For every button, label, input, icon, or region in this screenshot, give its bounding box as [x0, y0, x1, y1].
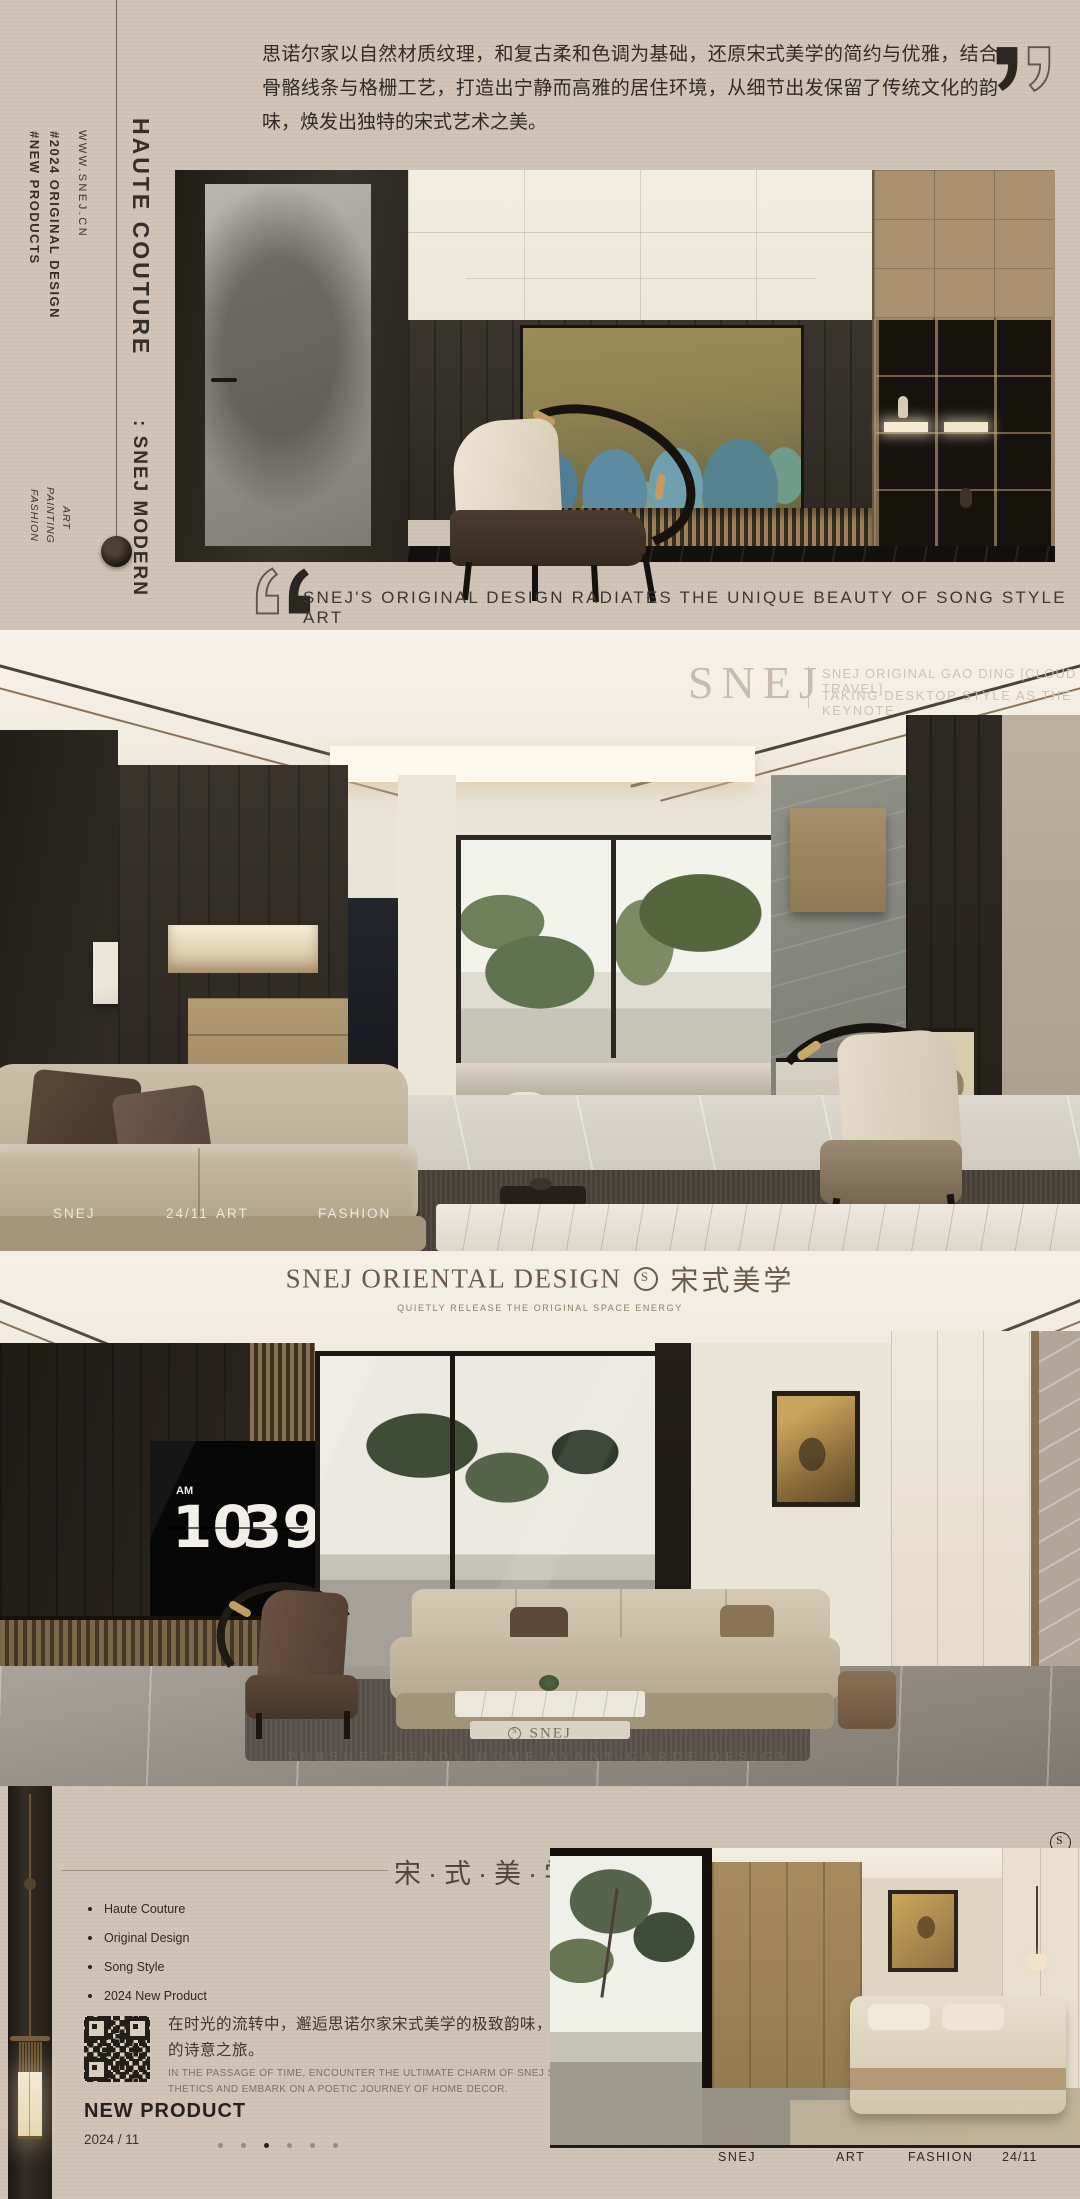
intro-paragraph: 思诺尔家以自然材质纹理，和复古柔和色调为基础，还原宋式美学的简约与优雅，结合骨骼…: [262, 38, 998, 140]
bed: [850, 1996, 1066, 2114]
feature-list: Haute Couture Original Design Song Style…: [88, 1894, 207, 2010]
shelf-light: [884, 422, 928, 432]
feature-item: Song Style: [88, 1952, 207, 1981]
left-rail-divider: [116, 0, 117, 546]
tall-cabinet: [891, 1331, 1039, 1713]
floor-brand: SNEJ: [530, 1725, 572, 1741]
qr-finder: [85, 2058, 108, 2081]
bedroom-art: [888, 1890, 958, 1972]
bottom-bar-issue: 24/11: [1002, 2150, 1037, 2164]
floor-brand-row: S SNEJ: [0, 1725, 1080, 1743]
accent-chair-seat: [246, 1675, 358, 1719]
rail-website: WWW.SNEJ.CN: [76, 130, 88, 238]
cabinet-seam: [408, 232, 872, 233]
pager-dots: [218, 2135, 356, 2153]
photo-footer-fashion: FASHION: [318, 1206, 391, 1221]
pager-dot: [287, 2143, 292, 2148]
framed-art: [772, 1391, 860, 1507]
shelf-vase: [898, 396, 908, 418]
title-rule: [62, 1870, 388, 1871]
garden-window: [456, 835, 781, 1073]
rail-headline: HAUTE COUTURE: [127, 118, 154, 356]
feature-item: Haute Couture: [88, 1894, 207, 1923]
pager-dot: [333, 2143, 338, 2148]
shelf-vase: [960, 488, 972, 508]
bottom-bar-brand: SNEJ: [718, 2150, 756, 2164]
bullet-icon: [88, 1907, 92, 1911]
frosted-door-glass: [205, 184, 371, 546]
body-cn-line2: 的诗意之旅。: [168, 2038, 264, 2060]
intro-quote: SNEJ'S ORIGINAL DESIGN RADIATES THE UNIQ…: [303, 588, 1080, 628]
bullet-icon: [88, 1965, 92, 1969]
bullet-icon: [88, 1994, 92, 1998]
rail-keyword-painting: PAINTING: [44, 487, 56, 544]
wood-wardrobe: [712, 1862, 862, 2102]
oriental-title-cn: 宋式美学: [670, 1265, 794, 1296]
table-plant: [539, 1675, 559, 1691]
bed-pillow: [868, 2004, 930, 2030]
flip-clock-seam: [168, 1527, 304, 1529]
frosted-door: [175, 170, 408, 562]
photo-footer-art: ART: [216, 1206, 249, 1221]
bedroom-photo: [550, 1848, 1080, 2148]
kitchen-lit-niche: [168, 925, 318, 973]
qr-code: [84, 2016, 150, 2082]
bottom-bar-art: ART: [836, 2150, 865, 2164]
ceiling-cove: [330, 746, 755, 782]
bottom-bar-fashion: FASHION: [908, 2150, 973, 2164]
oriental-subtitle: QUIETLY RELEASE THE ORIGINAL SPACE ENERG…: [0, 1303, 1080, 1313]
window-mullion: [611, 840, 616, 1058]
body-cn-line1: 在时光的流转中，邂逅思诺尔家宋式美学的极致韵味，开启家居: [168, 2012, 616, 2034]
tv-wall-slats-upper: [250, 1343, 315, 1443]
right-upper-cabinet: [790, 808, 886, 912]
photo-footer-brand: SNEJ: [53, 1206, 96, 1221]
new-product-label: NEW PRODUCT: [84, 2100, 246, 2123]
tray-bowl: [530, 1178, 552, 1190]
accent-chair-seat: [820, 1140, 962, 1204]
lamp-cap: [18, 2042, 42, 2072]
rail-modern-label: : SNEJ MODERN: [128, 420, 150, 597]
date-label: 2024 / 11: [84, 2132, 139, 2147]
lamp-rod: [29, 1794, 31, 2038]
sofa-base: [0, 1216, 426, 1251]
poster: HAUTE COUTURE WWW.SNEJ.CN #2024 ORIGINAL…: [0, 0, 1080, 2199]
right-marble-panel: [1039, 1331, 1080, 1713]
upper-cabinets: [408, 170, 872, 328]
floor-monogram-icon: S: [508, 1727, 521, 1740]
photo-footer-issue: 24/11: [166, 1206, 209, 1221]
tree-trunk: [600, 1888, 618, 1997]
pager-dot: [241, 2143, 246, 2148]
oriental-photo: SNEJ ORIENTAL DESIGN S 宋式美学 QUIETLY RELE…: [0, 1251, 1080, 1786]
coffee-table: [436, 1204, 1080, 1251]
shelving-open-cells: [876, 320, 1051, 548]
bedside-pendant-shade: [1028, 1954, 1046, 1970]
new-product-section: 宋·式·美·学 S Haute Couture Original Design …: [0, 1786, 1080, 2199]
island-counter: [456, 1063, 771, 1095]
qr-finder: [126, 2017, 149, 2040]
shelving-unit: [872, 170, 1055, 555]
watermark-brand: SNEJ: [688, 656, 825, 709]
intro-section: HAUTE COUTURE WWW.SNEJ.CN #2024 ORIGINAL…: [0, 0, 1080, 630]
lamp-disc: [10, 2036, 50, 2041]
shelving-doors: [874, 170, 1053, 318]
rail-keyword-fashion: FASHION: [28, 489, 40, 542]
rail-tag-new-products: #NEW PRODUCTS: [27, 131, 42, 265]
pager-dot: [310, 2143, 315, 2148]
garden-window: [550, 1848, 712, 2145]
rail-tag-original-design: #2024 ORIGINAL DESIGN: [47, 131, 62, 319]
armchair: [440, 412, 700, 602]
left-dark-strip: [8, 1786, 52, 2199]
door-handle: [211, 378, 237, 382]
bedside-pendant-cord: [1036, 1886, 1038, 1956]
bed-pillow: [942, 2004, 1004, 2030]
window-frame-top: [550, 1848, 702, 1856]
cabinet-seam: [466, 278, 816, 279]
sofa-lumbar-pillow: [720, 1605, 774, 1641]
monogram-icon: S: [634, 1267, 658, 1291]
lamp-bracket: [24, 1878, 36, 1890]
feature-item: Original Design: [88, 1923, 207, 1952]
coffee-table-tray: [500, 1186, 586, 1206]
oriental-header: SNEJ ORIENTAL DESIGN S 宋式美学 QUIETLY RELE…: [0, 1259, 1080, 1313]
oriental-title-en: SNEJ ORIENTAL DESIGN: [286, 1264, 622, 1294]
bed-throw: [850, 2068, 1066, 2090]
coffee-table: [455, 1691, 645, 1717]
bullet-icon: [88, 1936, 92, 1940]
lamp-shade: [18, 2072, 42, 2139]
pager-dot: [264, 2143, 269, 2148]
body-en-line2: THETICS AND EMBARK ON A POETIC JOURNEY O…: [168, 2084, 508, 2095]
watermark-caption-2: TAKING DESKTOP STYLE AS THE KEYNOTE: [822, 688, 1080, 718]
side-table: [838, 1671, 896, 1729]
accent-chair: [222, 1579, 372, 1739]
armchair-seat: [450, 510, 646, 566]
shelf-light: [944, 422, 988, 432]
accent-chair-back-cushion: [836, 1028, 962, 1158]
floor-tagline: PURSUE TRENDY HOME AVANT-GARDE DESIGN: [0, 1749, 1080, 1765]
feature-item: 2024 New Product: [88, 1981, 207, 2010]
watermark-divider: [808, 666, 809, 708]
closing-quote-icon: [994, 46, 1052, 97]
qr-finder: [85, 2017, 108, 2040]
pager-dot: [218, 2143, 223, 2148]
living-dining-photo: SNEJ SNEJ ORIGINAL GAO DING [CLOUD TRAVE…: [0, 630, 1080, 1251]
rail-keyword-art: ART: [60, 506, 72, 530]
